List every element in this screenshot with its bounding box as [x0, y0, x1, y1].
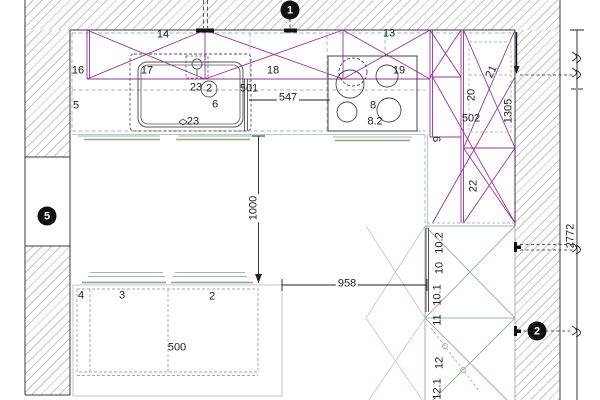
- label-10-1: 10.1: [433, 284, 444, 305]
- label-23-upper: 23: [190, 83, 202, 94]
- label-18: 18: [267, 66, 279, 77]
- plan-linework: [0, 0, 600, 400]
- label-13: 13: [383, 29, 395, 40]
- service-dashed: [204, 0, 208, 28]
- dim-547: 547: [277, 93, 299, 104]
- marker-1[interactable]: 1: [281, 1, 300, 20]
- marker-5[interactable]: 5: [38, 207, 57, 226]
- island-units: [77, 289, 258, 376]
- floor-plan-canvas[interactable]: 16 17 14 18 13 19 5 23 2 500 501 6 23 54…: [0, 0, 600, 400]
- plinth-lines: [78, 136, 412, 283]
- dim-958: 958: [336, 279, 358, 290]
- marker-2[interactable]: 2: [528, 322, 547, 341]
- label-5: 5: [73, 101, 79, 112]
- label-16: 16: [72, 66, 84, 77]
- corner-unit-dashed: [427, 42, 515, 223]
- label-11: 11: [433, 314, 444, 325]
- label-10: 10: [435, 262, 446, 274]
- label-502: 502: [462, 114, 480, 125]
- label-10-2: 10.2: [435, 232, 446, 253]
- label-8-2: 8.2: [367, 117, 382, 128]
- label-17: 17: [141, 66, 153, 77]
- label-9: 9: [433, 136, 444, 142]
- label-3: 3: [119, 291, 125, 302]
- label-22: 22: [469, 180, 480, 192]
- label-12: 12: [435, 357, 446, 369]
- label-12-1: 12.1: [433, 378, 444, 399]
- label-14: 14: [157, 30, 169, 41]
- label-20: 20: [467, 89, 478, 101]
- label-4: 4: [78, 291, 84, 302]
- dim-1000: 1000: [249, 194, 260, 222]
- dim-1305: 1305: [504, 99, 515, 123]
- dim-2772: 2772: [566, 224, 577, 248]
- label-23-lower: 23: [187, 117, 199, 128]
- dim-500: 500: [168, 343, 186, 354]
- label-501-text: 501: [240, 84, 258, 95]
- countertop-front-edges: [72, 135, 428, 397]
- label-19: 19: [393, 66, 405, 77]
- label-circle-2: 2: [206, 84, 212, 95]
- label-2: 2: [209, 292, 215, 303]
- label-6: 6: [212, 100, 218, 111]
- label-8: 8: [370, 101, 376, 112]
